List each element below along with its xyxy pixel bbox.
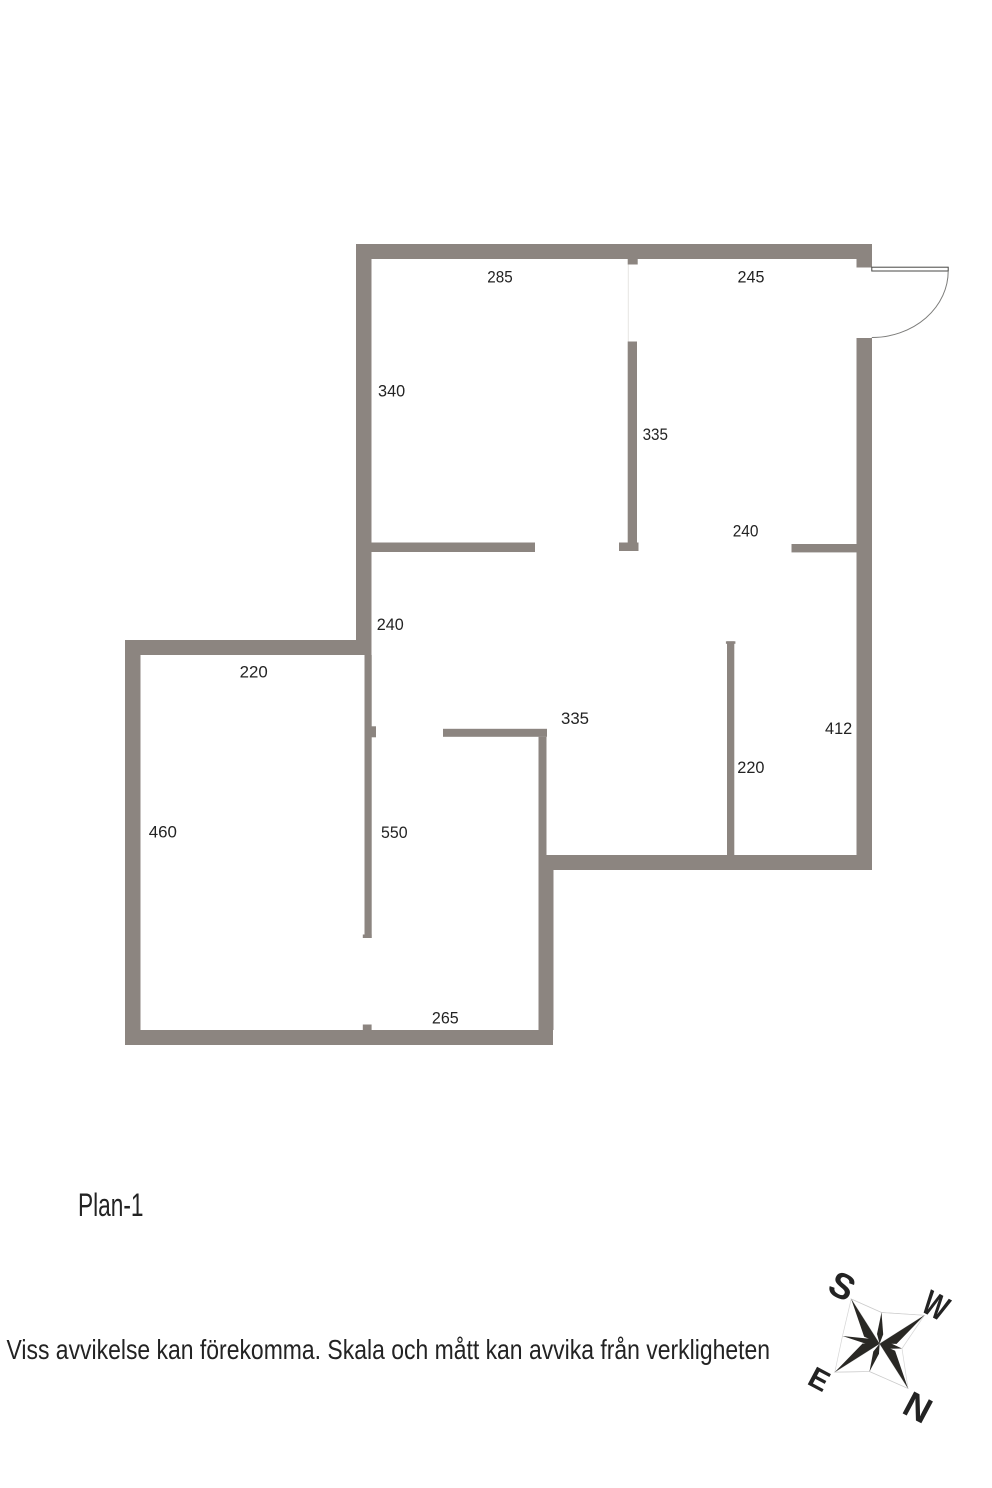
svg-text:245: 245 [738,268,765,287]
svg-text:340: 340 [378,381,405,400]
svg-text:412: 412 [825,719,852,738]
svg-text:Plan-1: Plan-1 [78,1187,144,1223]
svg-text:Viss avvikelse kan förekomma.: Viss avvikelse kan förekomma. Skala och … [7,1334,771,1365]
svg-text:550: 550 [381,823,408,842]
svg-text:335: 335 [643,425,668,444]
svg-text:265: 265 [432,1009,459,1028]
svg-text:460: 460 [149,823,177,842]
svg-text:335: 335 [561,709,589,728]
svg-text:285: 285 [487,268,512,287]
svg-text:220: 220 [737,758,764,777]
svg-text:240: 240 [377,615,404,634]
svg-text:220: 220 [240,663,268,682]
svg-text:240: 240 [733,522,759,541]
